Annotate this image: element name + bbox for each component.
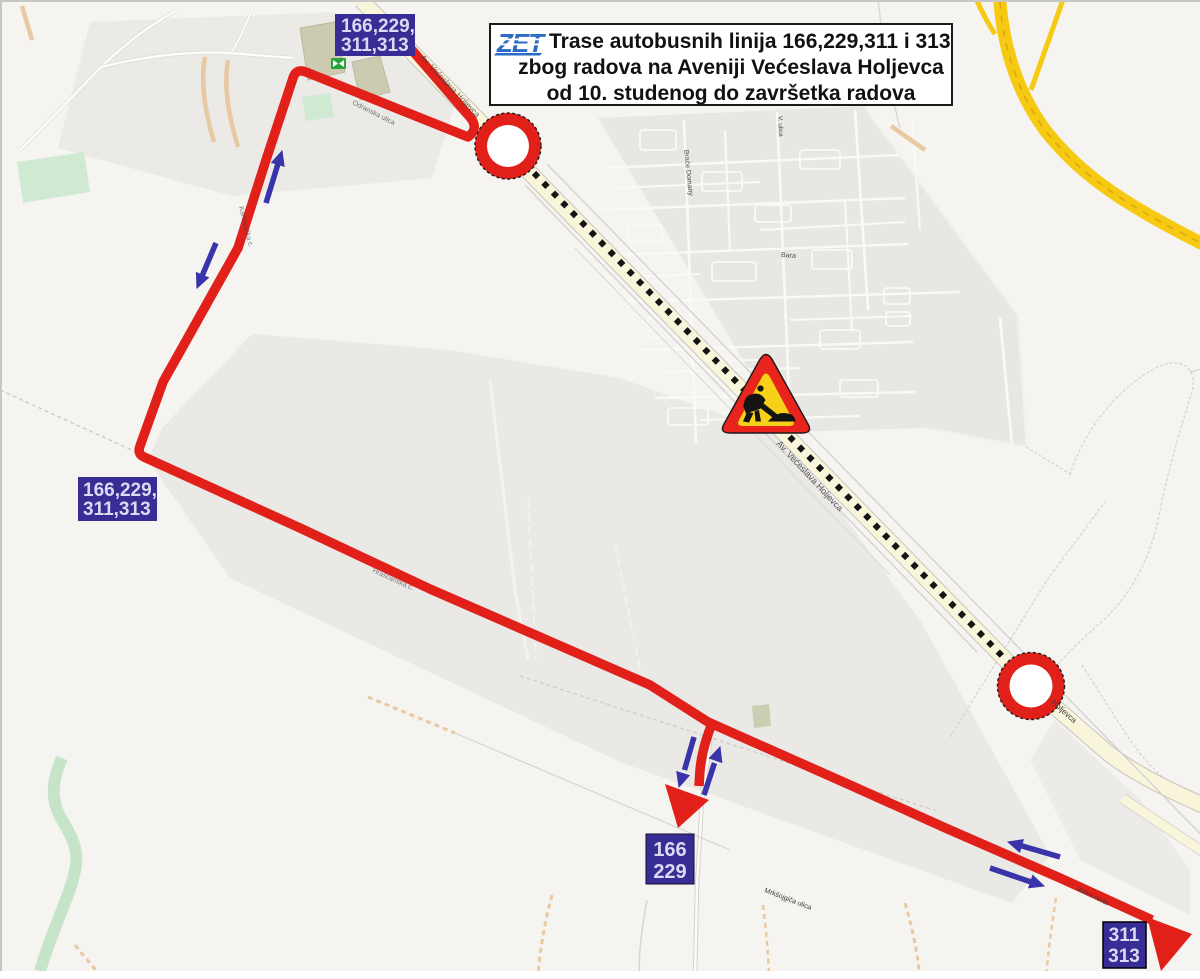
- svg-text:zbog radova na Aveniji Većesla: zbog radova na Aveniji Većeslava Holjevc…: [518, 56, 944, 79]
- svg-text:311: 311: [1109, 925, 1140, 946]
- svg-text:229: 229: [653, 861, 686, 883]
- svg-text:166: 166: [653, 839, 686, 861]
- svg-text:Trase autobusnih linija 166,22: Trase autobusnih linija 166,229,311 i 31…: [549, 30, 951, 53]
- svg-text:311,313: 311,313: [341, 35, 409, 56]
- svg-text:od 10. studenog do završetka r: od 10. studenog do završetka radova: [547, 82, 916, 105]
- svg-text:V. ulica: V. ulica: [776, 116, 784, 137]
- svg-text:Bara: Bara: [781, 252, 796, 260]
- svg-text:166,229,: 166,229,: [83, 480, 157, 501]
- svg-text:166,229,: 166,229,: [341, 16, 415, 37]
- svg-text:313: 313: [1108, 946, 1140, 967]
- svg-text:311,313: 311,313: [83, 499, 151, 520]
